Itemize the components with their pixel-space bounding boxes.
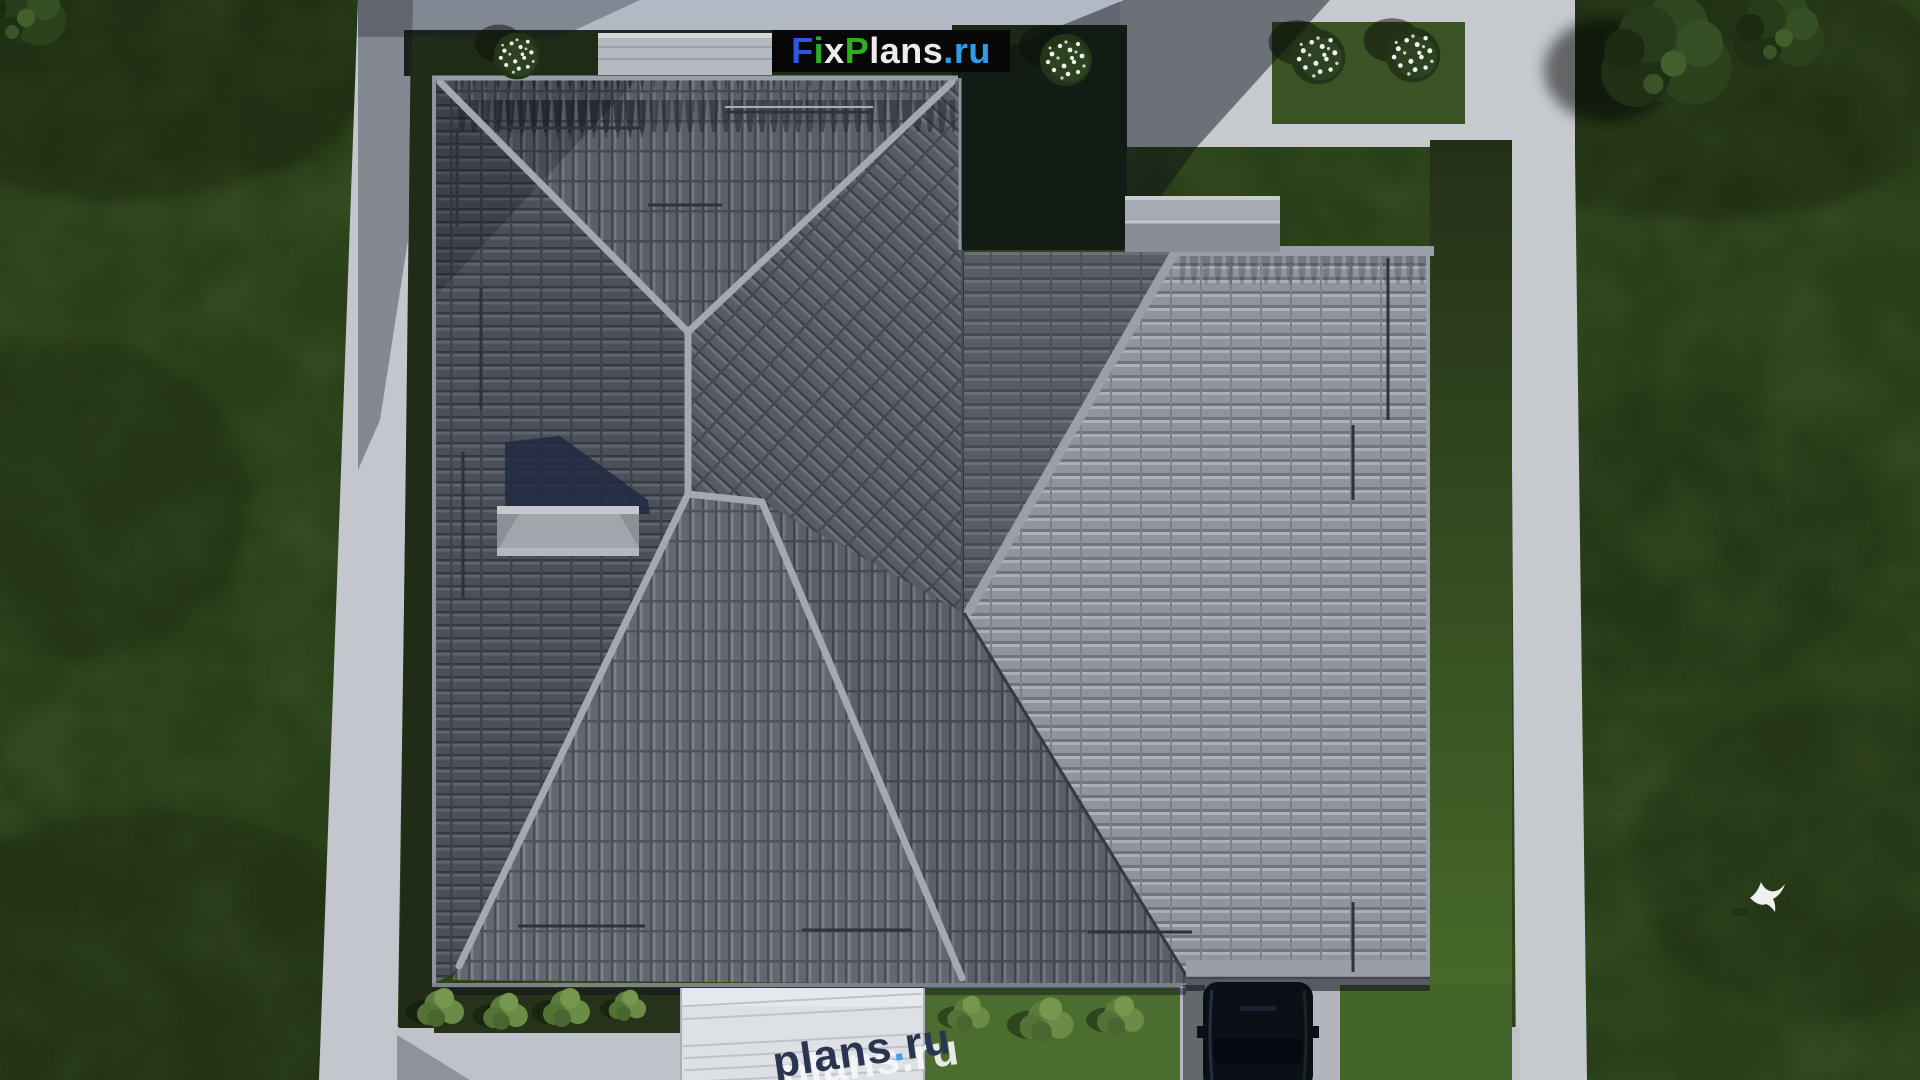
logo-letter: s <box>923 33 944 69</box>
logo-letter: x <box>824 33 845 69</box>
logo-letter: . <box>943 33 954 69</box>
car <box>1183 982 1319 1080</box>
skylight <box>497 506 639 556</box>
logo-letter: F <box>791 33 814 69</box>
logo-letter: l <box>869 33 880 69</box>
logo-letter: i <box>814 33 825 69</box>
logo-letter: a <box>880 33 901 69</box>
logo-letter: u <box>968 33 991 69</box>
porch-canopy-roof <box>1125 196 1280 252</box>
logo-letter: ru <box>902 1017 954 1067</box>
render-viewport: FixPlans.ru FixPlans.ru plans.ru <box>0 0 1920 1080</box>
garden-canopy <box>598 33 772 75</box>
scene-canvas <box>0 0 1920 1080</box>
logo-letter: r <box>954 33 969 69</box>
logo-letter: P <box>845 33 870 69</box>
fixplans-logo: FixPlans.ru <box>772 30 1010 72</box>
logo-letter: n <box>900 33 923 69</box>
